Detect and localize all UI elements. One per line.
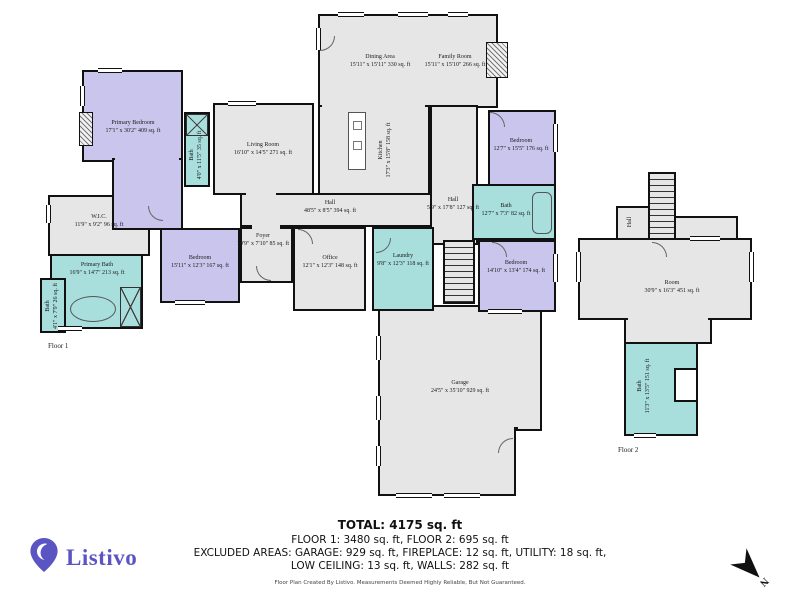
- room-label-floor2-room: Room 30'9" x 16'3" 451 sq. ft: [644, 280, 699, 296]
- window: [228, 101, 256, 106]
- room-label-laundry: Laundry 9'8" x 12'3" 118 sq. ft: [377, 253, 429, 269]
- window: [80, 86, 85, 106]
- window: [46, 205, 51, 223]
- bathtub-primary: [70, 296, 116, 322]
- fireplace-primary: [79, 112, 93, 146]
- room-label-hall-right: Hall 5'9" x 17'8" 127 sq. ft: [427, 197, 479, 213]
- room-label-hall-main: Hall 48'5" x 8'5" 394 sq. ft: [304, 200, 356, 216]
- hall-right-area: [430, 105, 478, 245]
- floor2-tag: Floor 2: [618, 446, 638, 454]
- window: [175, 300, 205, 305]
- room-label-wic: W.I.C. 11'9" x 9'2" 96 sq. ft: [75, 214, 124, 230]
- map-pin-icon: [30, 538, 58, 577]
- floor1-tag: Floor 1: [48, 342, 68, 350]
- room-label-kitchen: Kitchen 17'3" x 15'8" 158 sq. ft: [378, 122, 394, 177]
- kitchen-island: [348, 112, 366, 170]
- room-label-bedroom-right: Bedroom 14'10" x 13'4" 174 sq. ft: [487, 260, 545, 276]
- stairs-floor1: [443, 240, 475, 304]
- cooktop-icon: [353, 121, 362, 130]
- floor-plan-canvas: Primary Bedroom 17'1" x 30'2" 409 sq. ft…: [0, 0, 800, 600]
- room-label-bath-upper: Bath 4'0" x 11'5" 35 sq. ft: [189, 131, 205, 180]
- room-label-primary-bath: Primary Bath 16'9" x 14'7" 213 sq. ft: [69, 262, 124, 278]
- window: [448, 12, 468, 17]
- room-label-dining-area: Dining Area 15'11" x 15'11" 330 sq. ft: [350, 54, 411, 70]
- window: [98, 68, 122, 73]
- window: [690, 236, 720, 241]
- room-label-bedroom-left: Bedroom 15'11" x 12'3" 167 sq. ft: [171, 255, 229, 271]
- seam-primary-bedroom: [115, 155, 179, 164]
- room-label-floor2-hall: Hall: [627, 217, 635, 227]
- primary-bedroom-area: [82, 70, 183, 162]
- window: [376, 396, 381, 420]
- sink-icon: [353, 141, 362, 150]
- logo-wordmark: Listivo: [66, 545, 137, 571]
- window: [376, 446, 381, 466]
- room-label-foyer: Foyer 10'9" x 7'10" 85 sq. ft: [237, 233, 289, 249]
- room-label-bath-right: Bath 12'7" x 7'3" 82 sq. ft: [481, 203, 530, 219]
- window: [376, 336, 381, 360]
- room-label-bedroom-top-right: Bedroom 12'7" x 15'5" 176 sq. ft: [493, 138, 548, 154]
- window: [634, 433, 656, 438]
- window: [398, 12, 428, 17]
- seam-living-hall: [246, 191, 276, 197]
- room-label-primary-bedroom: Primary Bedroom 17'1" x 30'2" 409 sq. ft: [105, 120, 160, 136]
- room-label-floor2-bath: Bath 11'3" x 13'5" 151 sq. ft: [637, 359, 653, 414]
- bedroom-right-area: [478, 240, 556, 312]
- seam-dining-kitchen: [322, 102, 425, 111]
- window: [553, 254, 558, 282]
- room-label-bath-left: Bath 4'1" x 7'9" 26 sq. ft: [45, 283, 61, 329]
- bathtub-right: [532, 192, 552, 234]
- kitchen-area: [318, 105, 430, 195]
- fireplace-family: [486, 42, 508, 78]
- room-label-living-room: Living Room 16'10" x 14'5" 271 sq. ft: [234, 142, 292, 158]
- stairs-floor2: [648, 172, 676, 240]
- window: [444, 493, 480, 498]
- window: [749, 252, 754, 282]
- window: [396, 493, 432, 498]
- disclaimer-text: Floor Plan Created By Listivo. Measureme…: [0, 580, 800, 586]
- room-label-office: Office 12'1" x 12'3" 148 sq. ft: [302, 255, 357, 271]
- closet-x-primary-bath: [120, 287, 141, 327]
- room-label-garage: Garage 24'5" x 35'10" 929 sq. ft: [431, 380, 489, 396]
- listivo-logo: Listivo: [30, 538, 137, 577]
- total-area-text: TOTAL: 4175 sq. ft: [0, 518, 800, 532]
- room-label-family-room: Family Room 15'11" x 15'10" 266 sq. ft: [425, 54, 486, 70]
- window: [338, 12, 364, 17]
- seam-floor2: [628, 315, 708, 323]
- seam-hall-foyer: [252, 224, 280, 230]
- window: [553, 124, 558, 152]
- seam-garage: [512, 309, 520, 427]
- window: [58, 326, 82, 331]
- garage-area: [378, 305, 516, 496]
- window: [576, 252, 581, 282]
- window: [488, 309, 522, 314]
- north-arrow-icon: N: [730, 548, 776, 599]
- floor2-bath-notch: [674, 368, 698, 402]
